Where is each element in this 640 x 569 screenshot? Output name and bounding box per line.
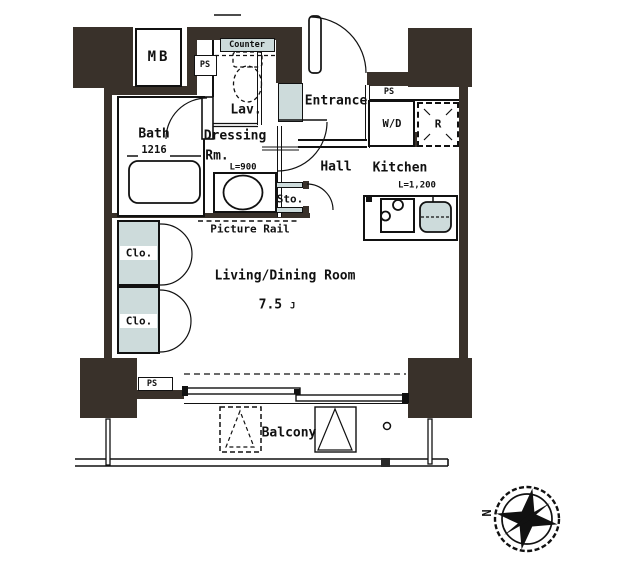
- label-hall: Hall: [320, 161, 351, 174]
- label-kitchen: Kitchen: [373, 162, 428, 175]
- kitchen-corner-block: [366, 195, 372, 202]
- label-counter: Counter: [229, 41, 265, 50]
- fixtures-overlay: [0, 0, 640, 569]
- label-lav: Lav.: [230, 104, 261, 117]
- label-bath-size: 1216: [141, 145, 166, 156]
- label-closet-lower: Clo.: [126, 316, 153, 327]
- label-wd: W/D: [383, 119, 402, 130]
- label-storage: Sto.: [277, 194, 304, 205]
- label-closet-upper: Clo.: [126, 248, 153, 259]
- label-dressing: Dressing: [204, 130, 267, 143]
- bathtub-icon: [129, 161, 200, 203]
- label-picture-rail: Picture Rail: [210, 224, 289, 235]
- window-end-cap-left: [182, 386, 188, 396]
- closet-upper-door-arc-2: [160, 254, 192, 285]
- label-entrance: Entrance: [305, 95, 368, 108]
- label-ps-bottom: PS: [147, 380, 157, 389]
- label-dressing-rm: Rm.: [205, 150, 228, 163]
- label-bath: Bath: [138, 128, 169, 141]
- ac-unit-triangle: [226, 411, 254, 447]
- railing-block: [381, 458, 390, 467]
- window-panel-right: [296, 395, 406, 401]
- label-l1200: L=1,200: [398, 182, 436, 191]
- toilet-bowl-icon: [234, 66, 262, 102]
- railing-post-left: [106, 419, 110, 465]
- wash-basin-icon: [224, 176, 263, 210]
- entrance-door-leaf: [309, 16, 321, 73]
- compass-north-label: N: [480, 509, 492, 516]
- compass-icon: [491, 483, 563, 555]
- window-end-cap-right: [402, 393, 409, 403]
- storage-door-arc: [307, 184, 333, 210]
- label-living-size-unit: J: [290, 302, 295, 312]
- burner-large-icon: [393, 200, 403, 210]
- closet-upper-door-arc-1: [160, 224, 192, 254]
- closet-lower-door-arc-1: [160, 290, 191, 321]
- label-l900: L=900: [229, 164, 256, 173]
- label-refrigerator: R: [435, 119, 442, 130]
- entrance-floor-lines: [262, 147, 299, 150]
- bath-door-arc: [166, 98, 207, 139]
- label-living-dining: Living/Dining Room: [215, 270, 356, 283]
- label-ps-right: PS: [384, 88, 394, 97]
- toilet-tank-icon: [233, 52, 262, 67]
- label-living-size: 7.5 J: [259, 299, 296, 312]
- window-middle-cap: [294, 389, 300, 394]
- balcony-drain-icon: [384, 423, 391, 430]
- railing-post-right: [428, 419, 432, 464]
- lav-dressing-divider: [212, 124, 258, 127]
- label-mb: MB: [148, 50, 171, 64]
- window-panel-left: [186, 388, 300, 394]
- balcony-railing-lines: [75, 459, 448, 466]
- burner-small-icon: [381, 212, 390, 221]
- label-living-size-value: 7.5: [259, 298, 282, 313]
- label-ps-left: PS: [200, 61, 210, 70]
- label-balcony: Balcony: [262, 427, 317, 440]
- closet-lower-door-arc-2: [160, 321, 191, 352]
- floor-plan: MB PS Counter Lav. Bath 1216 Dressing Rm…: [0, 0, 640, 569]
